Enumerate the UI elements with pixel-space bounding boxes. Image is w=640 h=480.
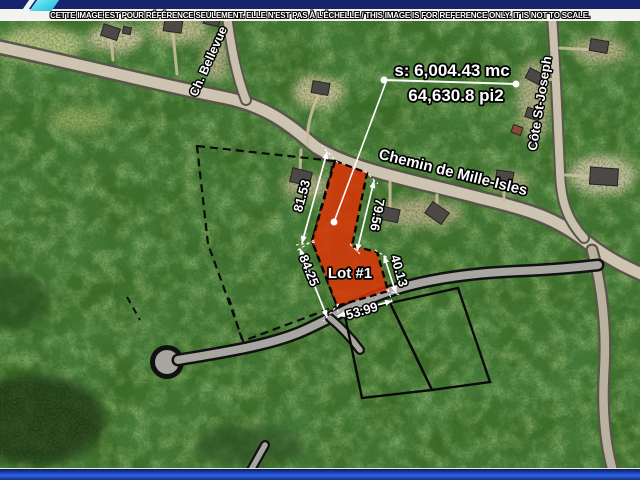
area-imperial: 64,630.8 pi2: [408, 86, 503, 105]
disclaimer-text: CETTE IMAGE EST POUR RÉFÉRENCE SEULEMENT…: [50, 11, 590, 20]
listing-reference-image: 81.53 79.56 84.25 40.13 53.99 Lot #1 Che…: [0, 0, 640, 480]
lot1-label: Lot #1: [328, 265, 372, 282]
area-metric: s: 6,004.43 mc: [394, 61, 509, 80]
lot-center-dot: [331, 219, 338, 226]
brand-bar: [0, 0, 640, 9]
disclaimer-banner: CETTE IMAGE EST POUR RÉFÉRENCE SEULEMENT…: [0, 9, 640, 21]
footer-bar: [0, 468, 640, 480]
aerial-map: 81.53 79.56 84.25 40.13 53.99 Lot #1 Che…: [0, 0, 640, 480]
